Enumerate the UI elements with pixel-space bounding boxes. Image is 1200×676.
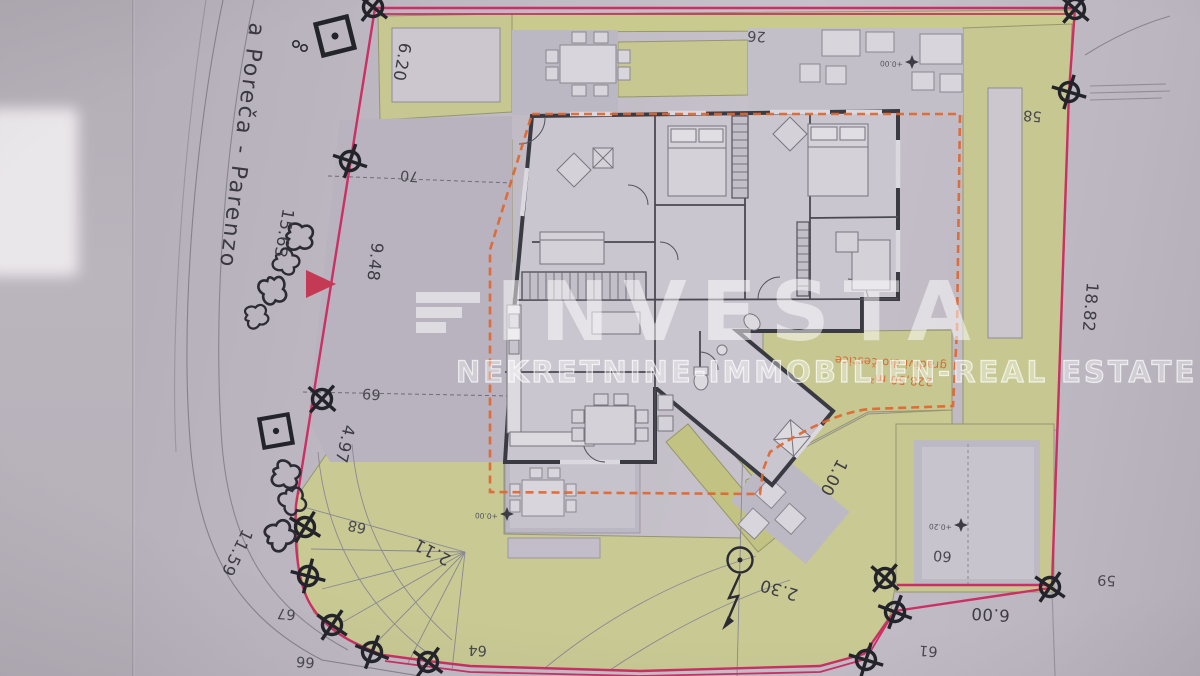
point-61: 61 bbox=[919, 641, 939, 659]
point-69: 69 bbox=[362, 384, 382, 402]
point-66: 66 bbox=[296, 652, 316, 670]
elevation-patio-right: +0.20 bbox=[928, 522, 952, 532]
site-plan-drawing: a Poreča - Parenzo 15.63 11.59 6.20 9.48… bbox=[0, 0, 1200, 676]
elevation-terrace: +0.00 bbox=[474, 511, 498, 521]
point-58: 58 bbox=[1023, 106, 1043, 124]
point-70: 70 bbox=[400, 166, 420, 184]
site-plan-photo: a Poreča - Parenzo 15.63 11.59 6.20 9.48… bbox=[0, 0, 1200, 676]
dim-18-82: 18.82 bbox=[1079, 282, 1102, 333]
point-60: 60 bbox=[933, 546, 953, 564]
dim-15-63: 15.63 bbox=[270, 207, 297, 259]
point-59: 59 bbox=[1097, 571, 1116, 588]
dim-6-00: 6.00 bbox=[971, 604, 1011, 625]
road-name-label: a Poreča - Parenzo bbox=[214, 21, 269, 270]
point-67: 67 bbox=[277, 604, 297, 622]
point-64: 64 bbox=[468, 641, 487, 658]
dim-11-59: 11.59 bbox=[218, 526, 257, 579]
elevation-main: +0.00 bbox=[879, 59, 903, 69]
point-26: 26 bbox=[747, 27, 766, 44]
